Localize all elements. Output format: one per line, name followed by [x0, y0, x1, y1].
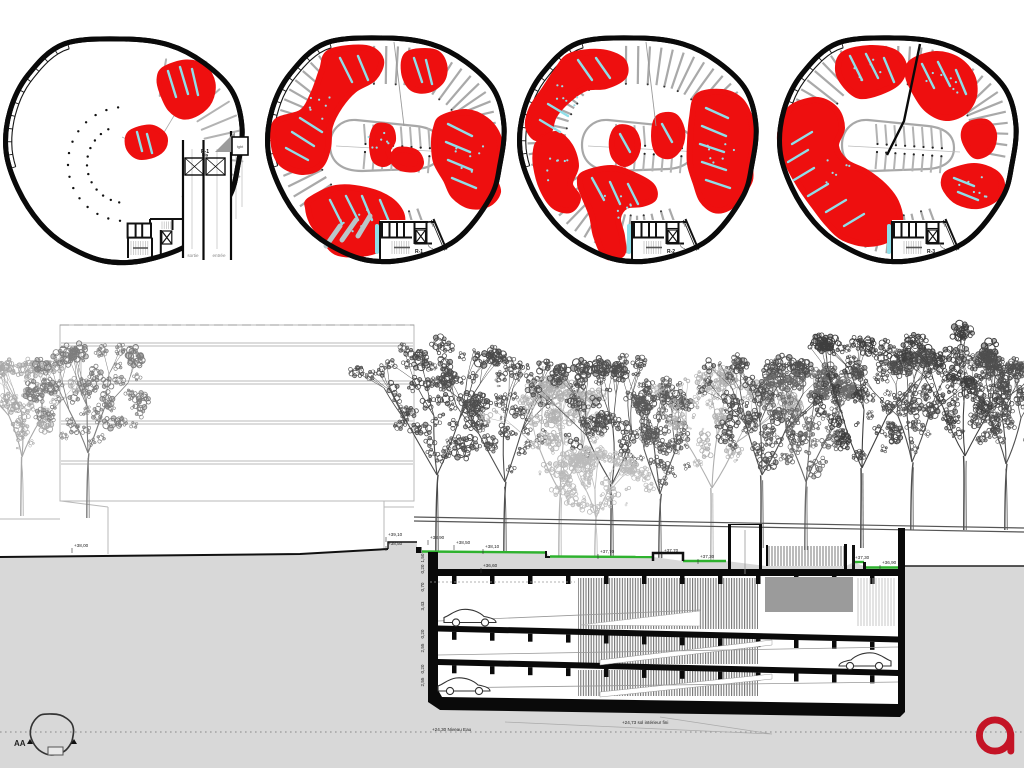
svg-text:+38,50: +38,50 [388, 541, 403, 546]
svg-text:2,55: 2,55 [420, 643, 425, 652]
svg-text:tgbt: tgbt [237, 145, 244, 149]
svg-text:entrée: entrée [212, 253, 225, 258]
svg-text:+24,73 sol intérieur fini: +24,73 sol intérieur fini [622, 720, 668, 725]
svg-text:2,55: 2,55 [420, 677, 425, 686]
svg-text:bis: bis [202, 153, 209, 158]
svg-text:+37,30: +37,30 [700, 554, 715, 559]
svg-text:+38,00: +38,00 [74, 543, 89, 548]
svg-text:0,20: 0,20 [420, 664, 425, 673]
svg-text:+36,90: +36,90 [882, 560, 897, 565]
svg-text:+37,30: +37,30 [855, 555, 870, 560]
svg-text:+38,90: +38,90 [430, 535, 445, 540]
svg-text:0,20: 0,20 [420, 629, 425, 638]
svg-text:+24,30 Niveau Eau: +24,30 Niveau Eau [432, 727, 472, 732]
svg-text:+39,10: +39,10 [388, 532, 403, 537]
svg-text:3,43: 3,43 [420, 601, 425, 610]
svg-text:+37,70: +37,70 [664, 548, 679, 553]
svg-text:+38,50: +38,50 [456, 540, 471, 545]
svg-text:+36,60: +36,60 [483, 563, 498, 568]
svg-text:+38,10: +38,10 [485, 544, 500, 549]
svg-text:0,20: 0,20 [420, 564, 425, 573]
svg-text:AA: AA [14, 739, 26, 748]
svg-text:+37,70: +37,70 [600, 549, 615, 554]
svg-text:0,70: 0,70 [420, 582, 425, 591]
svg-text:sortie: sortie [187, 253, 199, 258]
svg-text:1,50: 1,50 [420, 553, 425, 562]
